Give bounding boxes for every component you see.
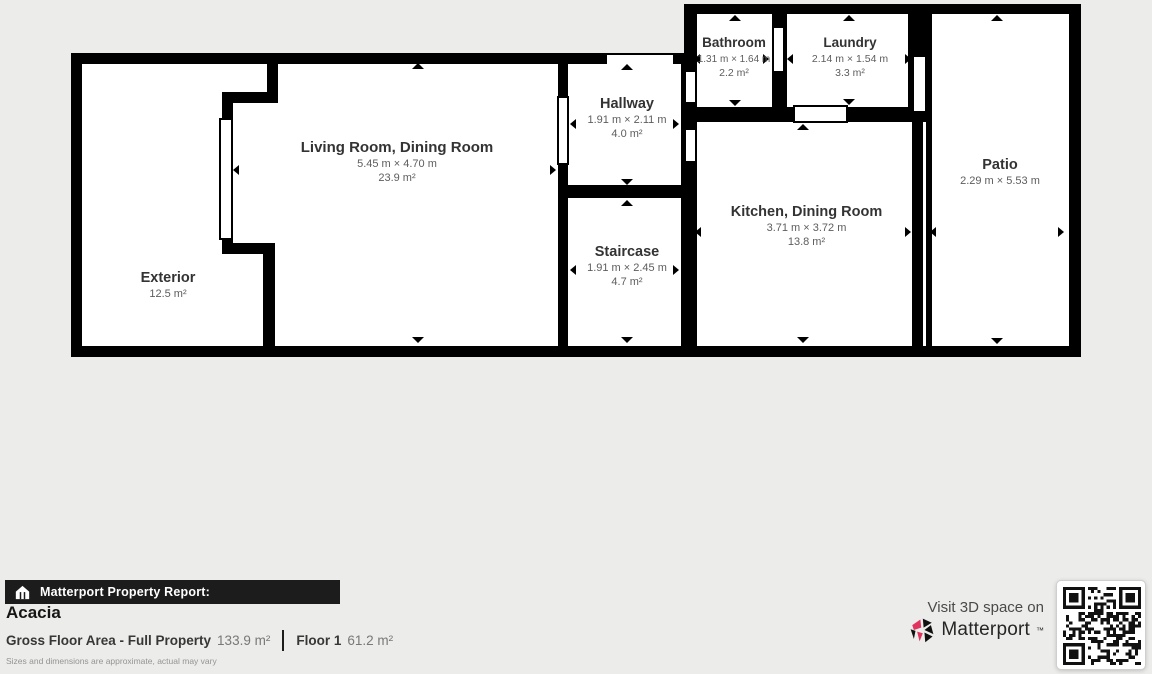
dimension-arrow-up	[621, 64, 633, 70]
room-dimensions: 2.29 m × 5.53 m	[936, 175, 1064, 189]
dimension-arrow-left	[233, 165, 239, 175]
trademark-symbol: ™	[1036, 626, 1044, 635]
room-area: 4.0 m²	[565, 128, 689, 142]
gross-floor-area-label: Gross Floor Area - Full Property	[6, 633, 211, 648]
dimension-arrow-up	[729, 15, 741, 21]
room-dimensions: 1.91 m × 2.45 m	[565, 262, 689, 276]
matterport-wordmark: Matterport	[941, 619, 1030, 641]
room-dimensions: 5.45 m × 4.70 m	[297, 158, 497, 172]
room-title: Patio	[936, 157, 1064, 173]
door-opening-marker	[607, 53, 673, 64]
room-title: Staircase	[565, 244, 689, 260]
room-title: Laundry	[788, 35, 912, 51]
dimension-arrow-up	[621, 200, 633, 206]
room-bathroom: Bathroom 1.31 m × 1.64 m 2.2 m²	[691, 35, 777, 80]
room-title: Hallway	[565, 96, 689, 112]
room-dimensions: 1.91 m × 2.11 m	[565, 114, 689, 128]
report-bar-label: Matterport Property Report:	[40, 585, 210, 599]
dimension-arrow-up	[991, 15, 1003, 21]
room-staircase: Staircase 1.91 m × 2.45 m 4.7 m²	[565, 244, 689, 289]
matterport-logo-icon	[909, 617, 935, 643]
dimension-arrow-down	[621, 179, 633, 185]
wall-segment	[222, 92, 278, 103]
room-area: 12.5 m²	[108, 288, 228, 302]
wall-gap	[923, 122, 926, 346]
divider	[282, 630, 284, 651]
visit-3d-text: Visit 3D space on	[820, 599, 1044, 616]
wall-segment	[558, 185, 681, 198]
house-icon	[14, 585, 31, 600]
room-dimensions: 2.14 m × 1.54 m	[788, 53, 912, 67]
dimension-arrow-right	[550, 165, 556, 175]
dimension-arrow-up	[412, 63, 424, 69]
window-marker	[912, 55, 927, 113]
room-exterior: Exterior 12.5 m²	[108, 270, 228, 302]
disclaimer-text: Sizes and dimensions are approximate, ac…	[6, 656, 217, 666]
floor-area-value: 61.2 m²	[347, 633, 393, 648]
room-area: 4.7 m²	[565, 276, 689, 290]
gross-floor-area-value: 133.9 m²	[217, 633, 270, 648]
report-title-bar: Matterport Property Report:	[5, 580, 340, 604]
dimension-arrow-right	[1058, 227, 1064, 237]
dimension-arrow-down	[621, 337, 633, 343]
room-title: Kitchen, Dining Room	[704, 204, 909, 220]
room-title: Exterior	[108, 270, 228, 286]
room-area: 23.9 m²	[297, 172, 497, 186]
dimension-arrow-up	[797, 124, 809, 130]
dimension-arrow-left	[695, 227, 701, 237]
room-living: Living Room, Dining Room 5.45 m × 4.70 m…	[297, 140, 497, 185]
room-area: 13.8 m²	[704, 236, 909, 250]
room-kitchen: Kitchen, Dining Room 3.71 m × 3.72 m 13.…	[704, 204, 909, 249]
floor-label: Floor 1	[296, 633, 341, 648]
room-dimensions: 1.31 m × 1.64 m	[691, 53, 777, 67]
door-opening-marker	[793, 105, 848, 123]
property-name: Acacia	[6, 603, 61, 623]
room-area: 2.2 m²	[691, 67, 777, 81]
dimension-arrow-left	[930, 227, 936, 237]
dimension-arrow-down	[412, 337, 424, 343]
wall-segment	[263, 254, 275, 346]
room-patio: Patio 2.29 m × 5.53 m	[936, 157, 1064, 189]
room-area: 3.3 m²	[788, 67, 912, 81]
dimension-arrow-down	[991, 338, 1003, 344]
dimension-arrow-up	[843, 15, 855, 21]
matterport-brand: Matterport ™	[820, 617, 1044, 643]
room-hallway: Hallway 1.91 m × 2.11 m 4.0 m²	[565, 96, 689, 141]
room-dimensions: 3.71 m × 3.72 m	[704, 222, 909, 236]
wall-segment	[222, 243, 275, 254]
dimension-arrow-down	[797, 337, 809, 343]
room-title: Living Room, Dining Room	[297, 140, 497, 156]
dimension-arrow-down	[843, 99, 855, 105]
room-laundry: Laundry 2.14 m × 1.54 m 3.3 m²	[788, 35, 912, 80]
window-marker	[219, 118, 233, 240]
floor-plan: Living Room, Dining Room 5.45 m × 4.70 m…	[0, 0, 1152, 560]
qr-code	[1056, 580, 1146, 670]
floor-area-summary: Gross Floor Area - Full Property 133.9 m…	[6, 630, 393, 651]
wall-segment	[222, 103, 233, 119]
room-title: Bathroom	[691, 35, 777, 51]
dimension-arrow-down	[729, 100, 741, 106]
